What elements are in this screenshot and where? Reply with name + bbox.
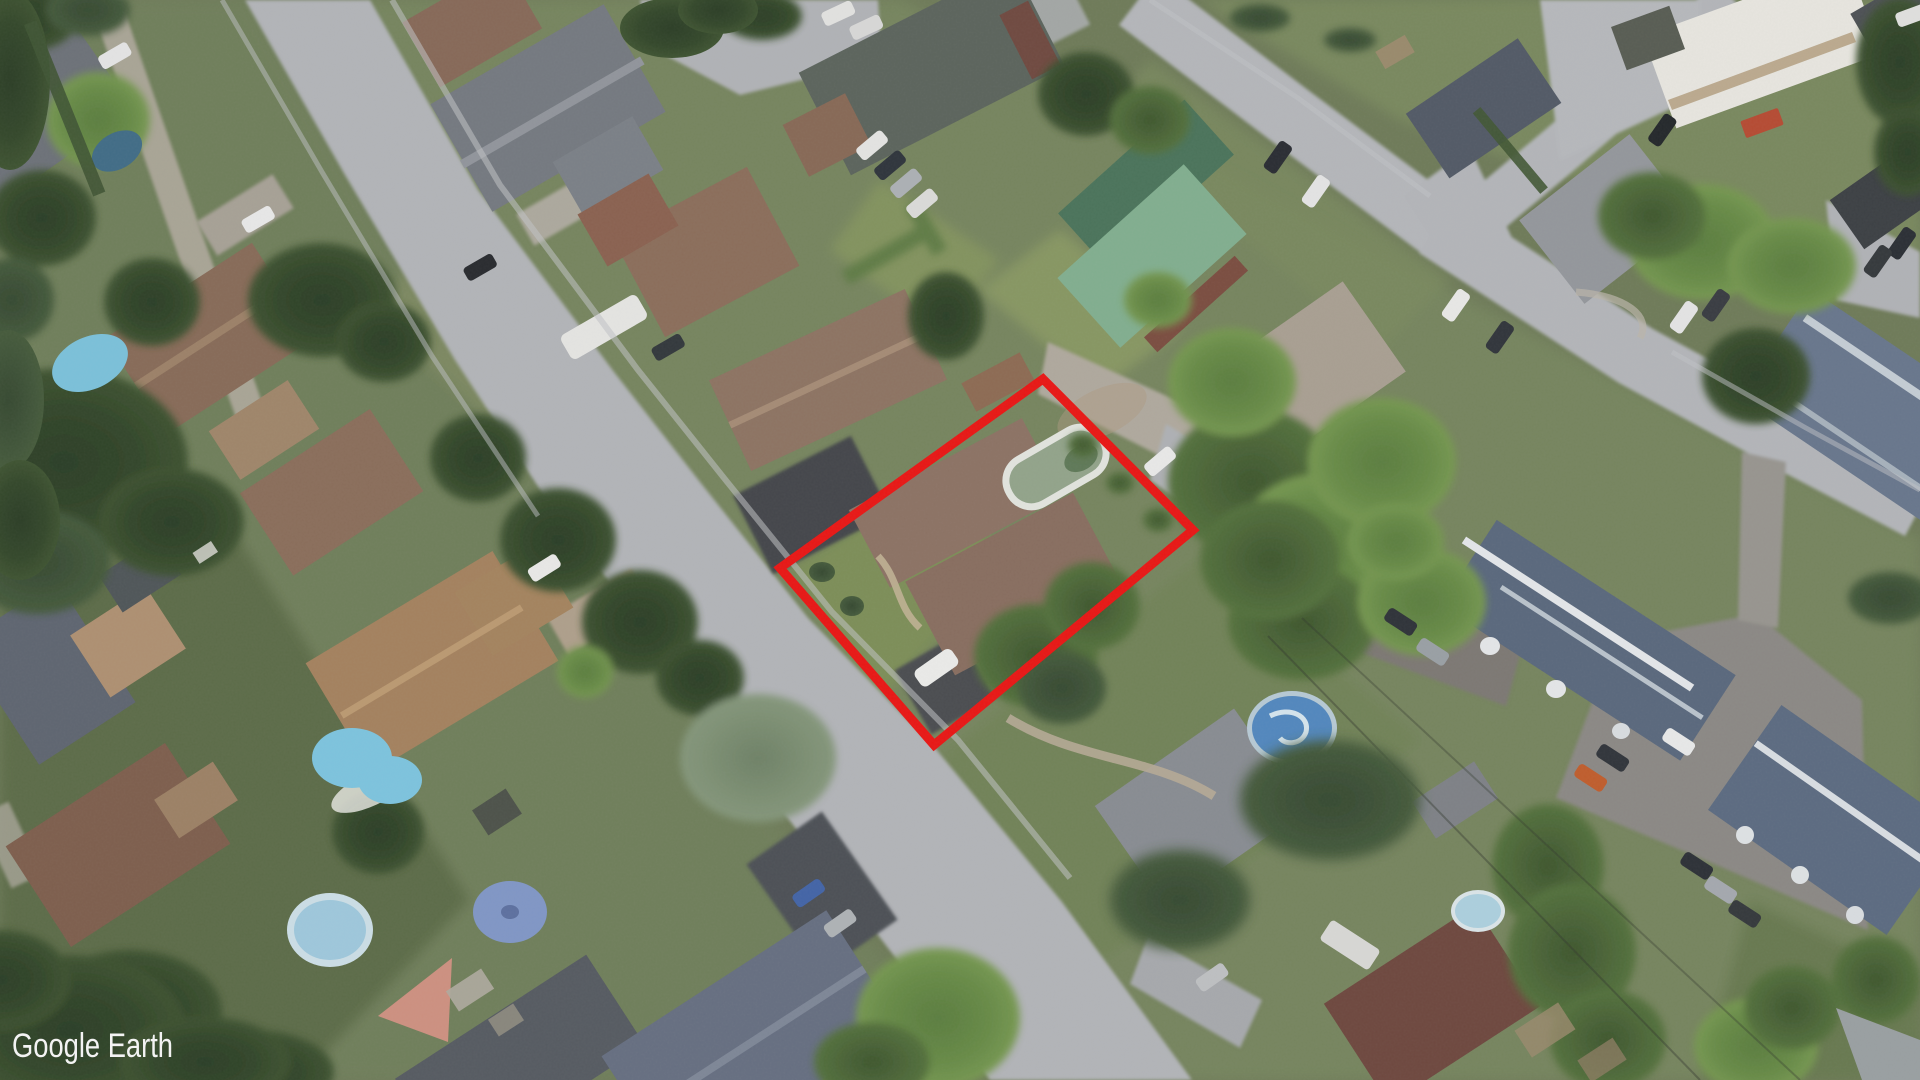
svg-text:Google Earth: Google Earth [12,1027,173,1065]
